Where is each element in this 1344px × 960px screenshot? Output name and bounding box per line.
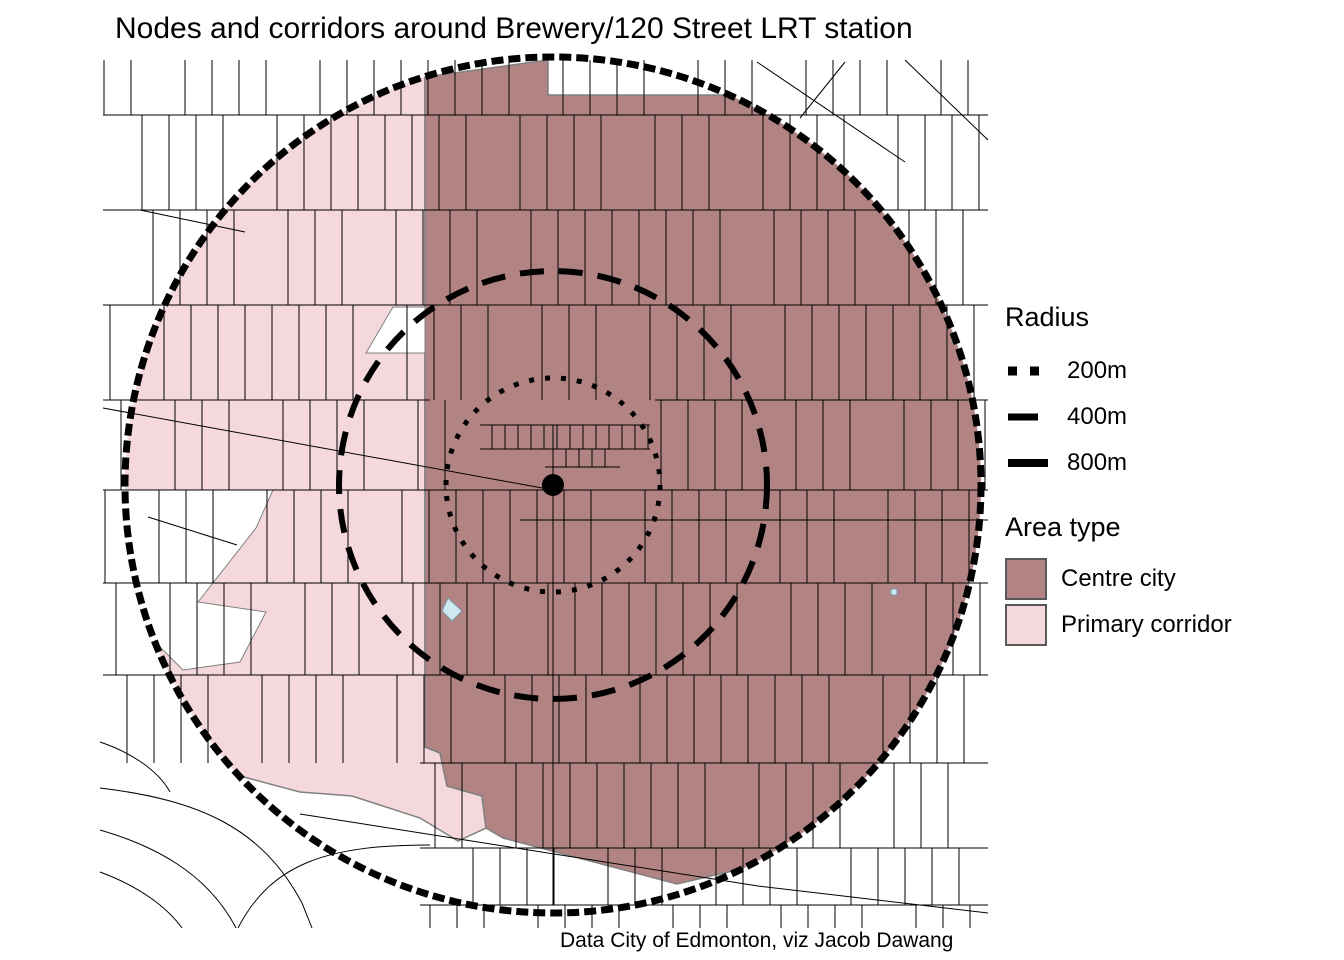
legend-item-800m: 800m [1005,440,1340,486]
valley-road [100,742,170,792]
legend-item-primary-corridor: Primary corridor [1005,602,1340,648]
valley-road [100,830,236,928]
area-type-legend: Area type Centre city Primary corridor [1005,510,1340,648]
radius-legend: Radius 200m 400m 800m [1005,300,1340,486]
valley-road [100,788,312,928]
area-type-legend-title: Area type [1005,510,1340,556]
centre-city-area [425,60,1000,884]
legend-label-primary-corridor: Primary corridor [1061,611,1232,639]
pond-dot [891,589,897,595]
legend-label-400m: 400m [1067,403,1127,431]
radius-legend-title: Radius [1005,300,1340,348]
legend: Radius 200m 400m 800m Area type Centre c… [1005,300,1340,648]
legend-item-centre-city: Centre city [1005,556,1340,602]
primary-corridor-swatch [1005,604,1047,646]
valley-road [100,872,182,928]
dotted-line-icon [1005,365,1057,377]
dashed-line-icon [1005,411,1057,423]
legend-label-800m: 800m [1067,449,1127,477]
legend-label-centre-city: Centre city [1061,565,1176,593]
legend-label-200m: 200m [1067,357,1127,385]
solid-line-icon [1005,457,1057,469]
page-title: Nodes and corridors around Brewery/120 S… [115,12,913,46]
centre-city-swatch [1005,558,1047,600]
caption: Data City of Edmonton, viz Jacob Dawang [560,929,953,953]
station-marker [542,474,564,496]
legend-item-400m: 400m [1005,394,1340,440]
legend-item-200m: 200m [1005,348,1340,394]
